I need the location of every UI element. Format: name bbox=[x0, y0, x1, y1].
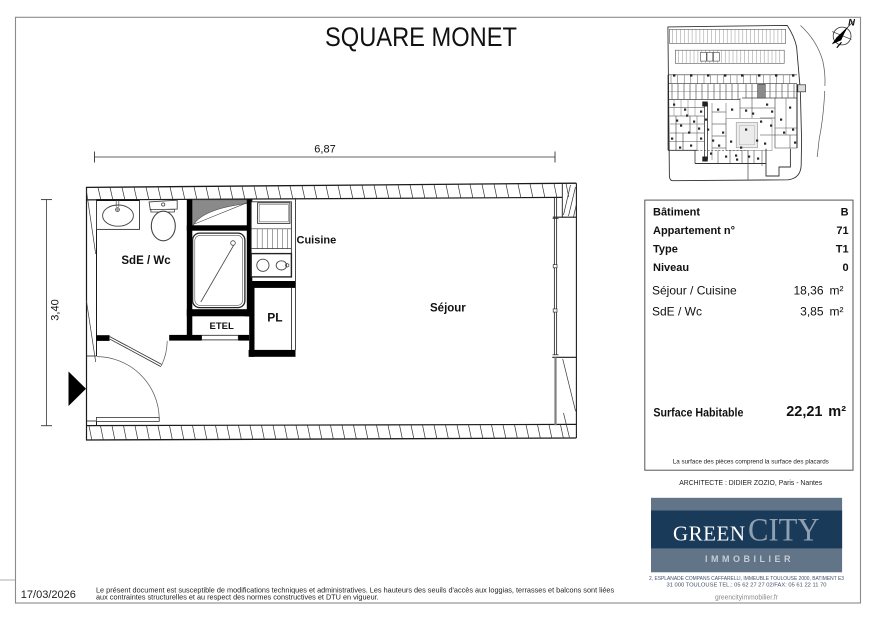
svg-text:T1: T1 bbox=[836, 244, 849, 256]
svg-text:2, ESPLANADE COMPANS CAFFARELL: 2, ESPLANADE COMPANS CAFFARELLI, IMMEUBL… bbox=[649, 576, 844, 582]
svg-text:La surface des pièces comprend: La surface des pièces comprend la surfac… bbox=[673, 458, 830, 465]
svg-text:SdE / Wc: SdE / Wc bbox=[121, 255, 171, 267]
svg-text:Appartement n°: Appartement n° bbox=[653, 225, 735, 237]
svg-text:ARCHITECTE : DIDIER ZOZIO, Par: ARCHITECTE : DIDIER ZOZIO, Paris - Nante… bbox=[679, 478, 822, 487]
svg-text:3,85: 3,85 bbox=[800, 304, 824, 318]
svg-text:m²: m² bbox=[828, 404, 846, 420]
svg-text:N: N bbox=[848, 18, 856, 29]
svg-text:31 000 TOULOUSE TEL.: 05 62 27: 31 000 TOULOUSE TEL.: 05 62 27 27 02/FAX… bbox=[667, 583, 827, 589]
svg-text:greencityimmobilier.fr: greencityimmobilier.fr bbox=[715, 593, 778, 602]
svg-text:SQUARE MONET: SQUARE MONET bbox=[325, 22, 517, 52]
svg-text:71: 71 bbox=[836, 225, 848, 237]
svg-text:GREEN: GREEN bbox=[673, 522, 746, 546]
svg-text:Niveau: Niveau bbox=[653, 262, 689, 274]
svg-text:CITY: CITY bbox=[748, 513, 820, 549]
svg-text:ETEL: ETEL bbox=[210, 321, 234, 332]
svg-text:6,87: 6,87 bbox=[314, 144, 335, 156]
svg-text:Séjour: Séjour bbox=[430, 303, 466, 315]
svg-text:aux contraintes structurelles: aux contraintes structurelles et au resp… bbox=[96, 592, 379, 601]
svg-text:m²: m² bbox=[830, 284, 844, 298]
svg-text:Surface Habitable: Surface Habitable bbox=[653, 406, 743, 420]
svg-text:m²: m² bbox=[830, 304, 844, 318]
svg-text:Bâtiment: Bâtiment bbox=[653, 206, 700, 218]
svg-text:B: B bbox=[841, 206, 849, 218]
svg-text:Cuisine: Cuisine bbox=[297, 234, 337, 246]
svg-text:18,36: 18,36 bbox=[793, 284, 823, 298]
svg-text:PL: PL bbox=[267, 311, 282, 325]
svg-text:17/03/2026: 17/03/2026 bbox=[21, 589, 76, 601]
svg-text:IMMOBILIER: IMMOBILIER bbox=[705, 554, 794, 564]
svg-text:Séjour / Cuisine: Séjour / Cuisine bbox=[652, 284, 737, 298]
svg-text:3,40: 3,40 bbox=[50, 299, 62, 320]
svg-text:SdE / Wc: SdE / Wc bbox=[652, 304, 702, 318]
svg-text:Type: Type bbox=[653, 244, 678, 256]
svg-text:0: 0 bbox=[842, 262, 848, 274]
svg-text:22,21: 22,21 bbox=[786, 404, 822, 420]
